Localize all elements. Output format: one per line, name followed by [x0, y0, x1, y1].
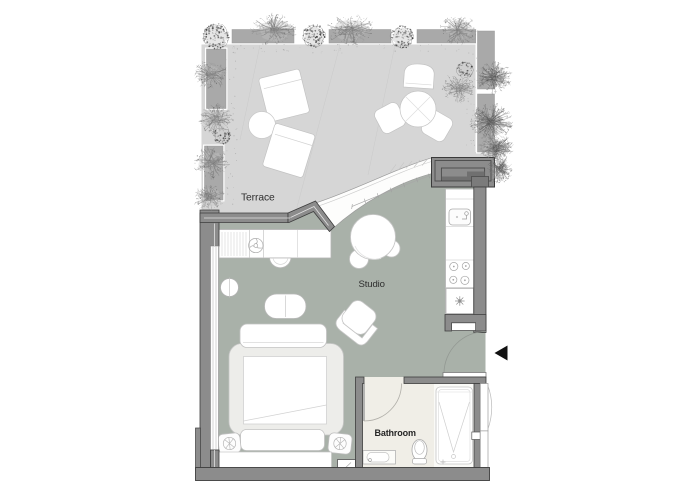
svg-text:Bathroom: Bathroom: [375, 428, 416, 438]
svg-text:Terrace: Terrace: [241, 193, 275, 204]
svg-text:Studio: Studio: [359, 279, 385, 290]
